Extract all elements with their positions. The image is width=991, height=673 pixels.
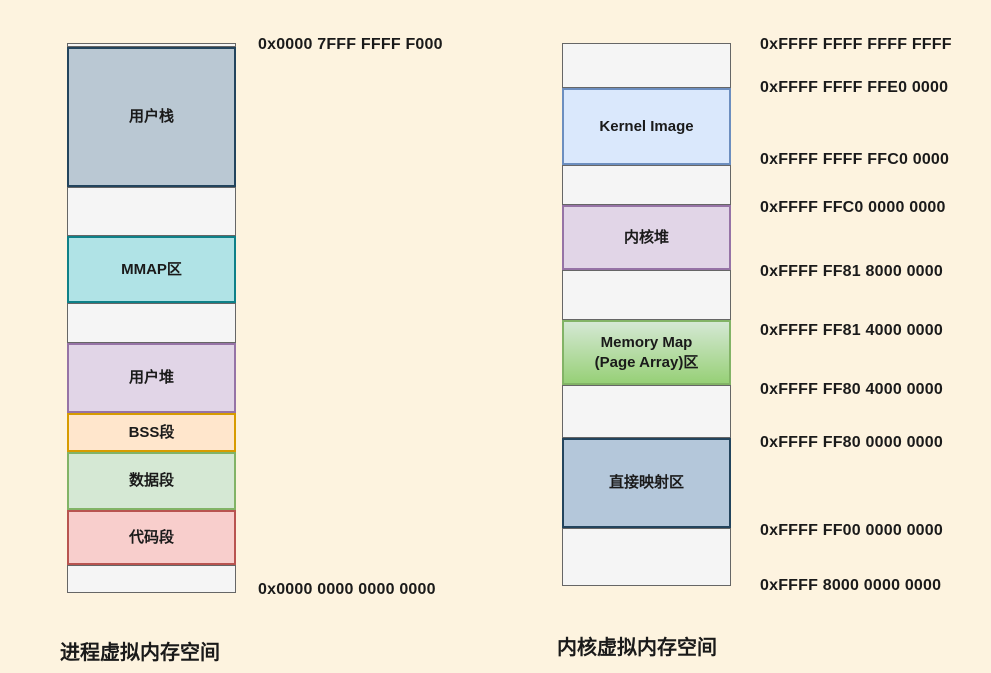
segment-bottom-gap	[562, 528, 731, 586]
process-bottom-address: 0x0000 0000 0000 0000	[258, 581, 436, 599]
segment-kernel-heap: 内核堆	[562, 205, 731, 270]
segment-free-gap-2	[67, 303, 236, 343]
kernel-address-1: 0xFFFF FFFF FFE0 0000	[760, 79, 948, 97]
segment-kernel-image: Kernel Image	[562, 88, 731, 165]
segment-bss-segment: BSS段	[67, 413, 236, 452]
segment-user-stack: 用户栈	[67, 47, 236, 187]
kernel-address-3: 0xFFFF FFC0 0000 0000	[760, 199, 946, 217]
segment-free-gap-3	[562, 385, 731, 438]
segment-data-segment: 数据段	[67, 452, 236, 510]
segment-top-gap	[562, 43, 731, 88]
kernel-address-0: 0xFFFF FFFF FFFF FFFF	[760, 36, 952, 54]
segment-free-gap-1	[67, 187, 236, 236]
process-memory-column: 用户栈MMAP区用户堆BSS段数据段代码段	[67, 43, 236, 593]
memory-layout-diagram: 用户栈MMAP区用户堆BSS段数据段代码段 0x0000 7FFF FFFF F…	[0, 0, 991, 673]
segment-user-heap: 用户堆	[67, 343, 236, 413]
segment-bottom-gap	[67, 565, 236, 593]
process-top-address: 0x0000 7FFF FFFF F000	[258, 36, 443, 54]
segment-code-segment: 代码段	[67, 510, 236, 565]
segment-direct-mapping-area: 直接映射区	[562, 438, 731, 528]
segment-free-gap-2	[562, 270, 731, 320]
kernel-address-8: 0xFFFF FF00 0000 0000	[760, 522, 943, 540]
kernel-address-5: 0xFFFF FF81 4000 0000	[760, 322, 943, 340]
kernel-address-4: 0xFFFF FF81 8000 0000	[760, 263, 943, 281]
kernel-address-9: 0xFFFF 8000 0000 0000	[760, 577, 941, 595]
kernel-memory-column: Kernel Image内核堆Memory Map (Page Array)区直…	[562, 43, 731, 586]
segment-memory-map-area: Memory Map (Page Array)区	[562, 320, 731, 385]
segment-free-gap-1	[562, 165, 731, 205]
kernel-address-2: 0xFFFF FFFF FFC0 0000	[760, 151, 949, 169]
kernel-memory-title: 内核虚拟内存空间	[557, 631, 717, 660]
kernel-address-7: 0xFFFF FF80 0000 0000	[760, 434, 943, 452]
kernel-address-6: 0xFFFF FF80 4000 0000	[760, 381, 943, 399]
process-memory-title: 进程虚拟内存空间	[60, 636, 220, 665]
segment-mmap-area: MMAP区	[67, 236, 236, 303]
